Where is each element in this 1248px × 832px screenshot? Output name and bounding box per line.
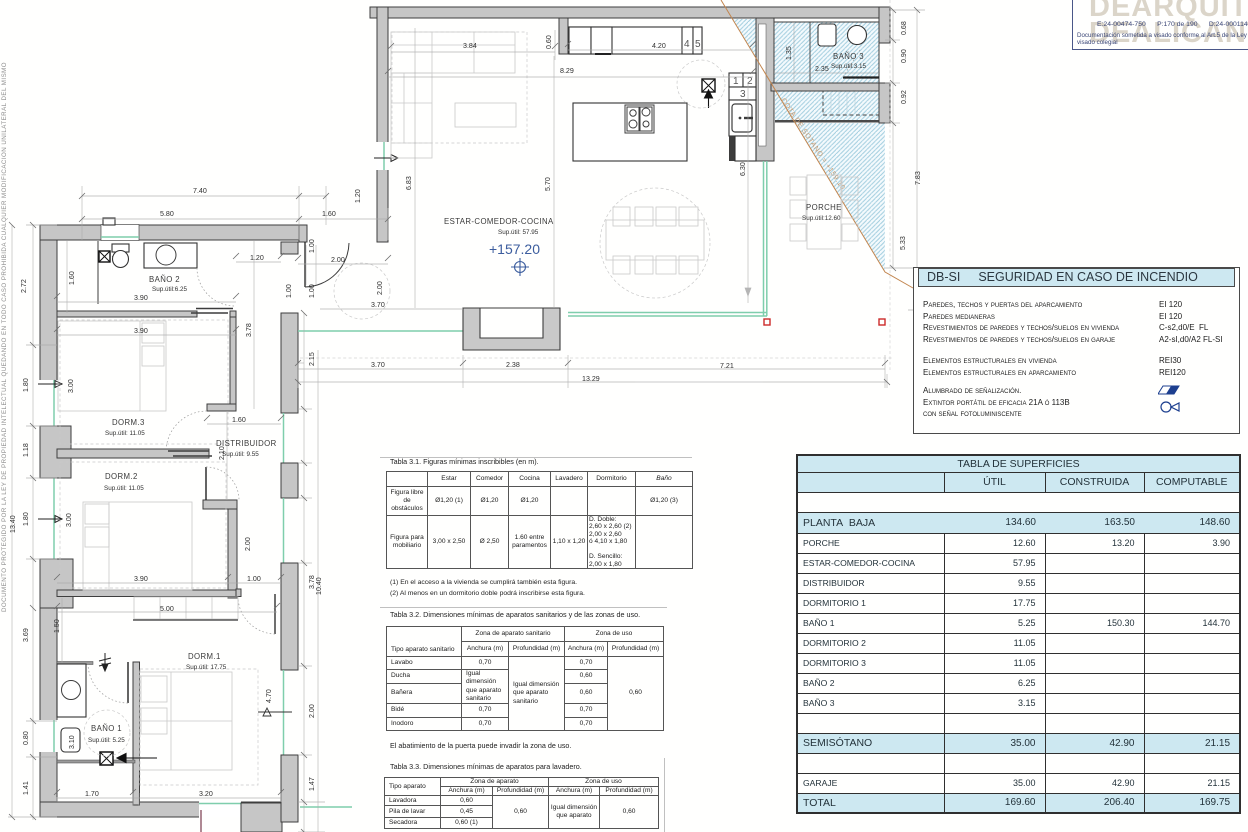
svg-text:2.15: 2.15 [308, 352, 316, 366]
svg-text:1.35: 1.35 [785, 46, 793, 60]
svg-text:2.38: 2.38 [506, 361, 520, 369]
svg-text:3.69: 3.69 [22, 628, 30, 642]
svg-text:0.60: 0.60 [545, 35, 553, 49]
svg-text:2.00: 2.00 [376, 281, 384, 295]
svg-text:1.20: 1.20 [354, 189, 362, 203]
svg-text:1.00: 1.00 [308, 239, 316, 253]
svg-text:13.29: 13.29 [582, 375, 600, 383]
svg-text:4.70: 4.70 [265, 689, 273, 703]
svg-text:Sup.útil: 11.05: Sup.útil: 11.05 [104, 485, 144, 492]
svg-text:5: 5 [695, 39, 701, 50]
svg-text:1.00: 1.00 [308, 284, 316, 298]
svg-text:2.00: 2.00 [244, 537, 252, 551]
svg-text:6.30: 6.30 [739, 162, 747, 176]
svg-text:DORM.3: DORM.3 [112, 418, 145, 427]
svg-text:ESTAR-COMEDOR-COCINA: ESTAR-COMEDOR-COCINA [444, 217, 554, 226]
svg-text:0.68: 0.68 [900, 21, 908, 35]
svg-text:13.40: 13.40 [9, 515, 17, 533]
svg-text:3.00: 3.00 [67, 379, 75, 393]
svg-text:5.70: 5.70 [544, 177, 552, 191]
svg-text:1.00: 1.00 [285, 284, 293, 298]
svg-text:Sup.útil: 9.55: Sup.útil: 9.55 [222, 451, 259, 458]
svg-text:1.60: 1.60 [322, 210, 336, 218]
svg-text:1: 1 [733, 76, 739, 87]
svg-text:3.20: 3.20 [199, 790, 213, 798]
svg-text:7.40: 7.40 [193, 187, 207, 195]
svg-text:1.00: 1.00 [247, 575, 261, 583]
svg-text:5.80: 5.80 [160, 210, 174, 218]
svg-text:DORM.1: DORM.1 [188, 652, 221, 661]
svg-text:Sup.útil: 17.75: Sup.útil: 17.75 [186, 664, 227, 671]
svg-text:3: 3 [740, 89, 746, 100]
svg-text:7.21: 7.21 [720, 362, 734, 370]
svg-text:3.70: 3.70 [371, 301, 385, 309]
svg-text:BAÑO 2: BAÑO 2 [149, 275, 180, 284]
svg-text:5.00: 5.00 [160, 605, 174, 613]
svg-text:1.20: 1.20 [250, 254, 264, 262]
svg-text:3.70: 3.70 [371, 361, 385, 369]
svg-text:Sup.útil: 11.05: Sup.útil: 11.05 [105, 430, 145, 437]
svg-text:Sup.útil: 5.25: Sup.útil: 5.25 [88, 737, 125, 744]
svg-text:DISTRIBUIDOR: DISTRIBUIDOR [216, 439, 277, 448]
svg-text:2.00: 2.00 [308, 704, 316, 718]
svg-text:3.78: 3.78 [245, 323, 253, 337]
svg-text:0.80: 0.80 [22, 731, 30, 745]
svg-text:0.92: 0.92 [900, 90, 908, 104]
svg-text:1.60: 1.60 [232, 416, 246, 424]
svg-text:4: 4 [684, 39, 690, 50]
svg-text:6.83: 6.83 [405, 176, 413, 190]
svg-text:3.90: 3.90 [134, 575, 148, 583]
svg-text:4.20: 4.20 [652, 42, 666, 50]
svg-text:1.47: 1.47 [308, 777, 316, 791]
svg-text:DOCUMENTO PROTEGIDO POR LA LEY: DOCUMENTO PROTEGIDO POR LA LEY DE PROPIE… [1, 62, 8, 612]
svg-text:1.41: 1.41 [22, 781, 30, 795]
svg-text:1.80: 1.80 [22, 512, 30, 526]
svg-text:0.90: 0.90 [900, 49, 908, 63]
svg-text:2.35: 2.35 [815, 65, 829, 73]
svg-text:1.50: 1.50 [53, 619, 61, 633]
svg-text:1.18: 1.18 [22, 443, 30, 457]
svg-text:3.10: 3.10 [69, 735, 76, 749]
svg-text:DORM.2: DORM.2 [105, 472, 138, 481]
svg-text:3.90: 3.90 [134, 327, 148, 335]
svg-text:3.90: 3.90 [134, 294, 148, 302]
svg-text:3.00: 3.00 [65, 513, 73, 527]
svg-text:Sup.útil:6.25: Sup.útil:6.25 [152, 286, 188, 293]
svg-text:PORCHE: PORCHE [806, 203, 842, 212]
svg-text:7.83: 7.83 [914, 171, 922, 185]
svg-text:Sup.útil:12.60: Sup.útil:12.60 [802, 215, 841, 222]
svg-text:BAÑO 3: BAÑO 3 [833, 52, 864, 61]
svg-text:BAÑO 1: BAÑO 1 [91, 724, 122, 733]
svg-text:Sup.útil: 57.95: Sup.útil: 57.95 [498, 229, 539, 236]
svg-text:8.29: 8.29 [560, 67, 574, 75]
svg-text:1.70: 1.70 [85, 790, 99, 798]
svg-text:3.84: 3.84 [463, 42, 477, 50]
svg-text:5.33: 5.33 [899, 236, 907, 250]
svg-text:10.40: 10.40 [315, 577, 323, 595]
svg-text:+157.20: +157.20 [489, 241, 540, 257]
svg-text:Sup.útil:3.15: Sup.útil:3.15 [831, 63, 867, 70]
svg-text:2.00: 2.00 [331, 256, 345, 264]
svg-text:2.72: 2.72 [20, 279, 28, 293]
svg-text:1.60: 1.60 [68, 271, 76, 285]
svg-text:1.80: 1.80 [22, 378, 30, 392]
